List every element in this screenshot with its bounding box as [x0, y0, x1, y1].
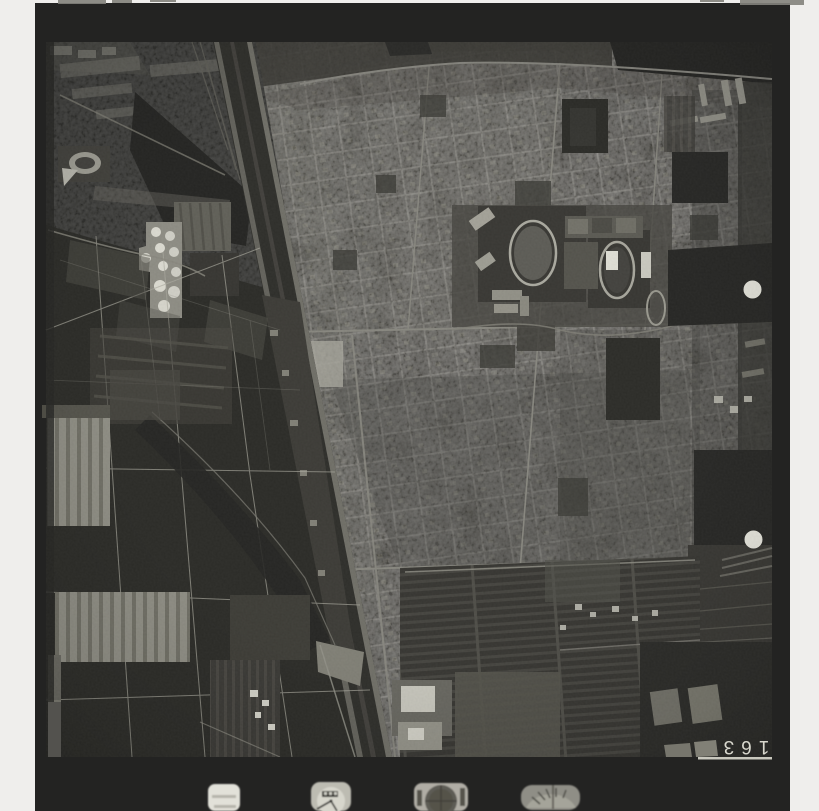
svg-text:163: 163 — [717, 736, 770, 757]
